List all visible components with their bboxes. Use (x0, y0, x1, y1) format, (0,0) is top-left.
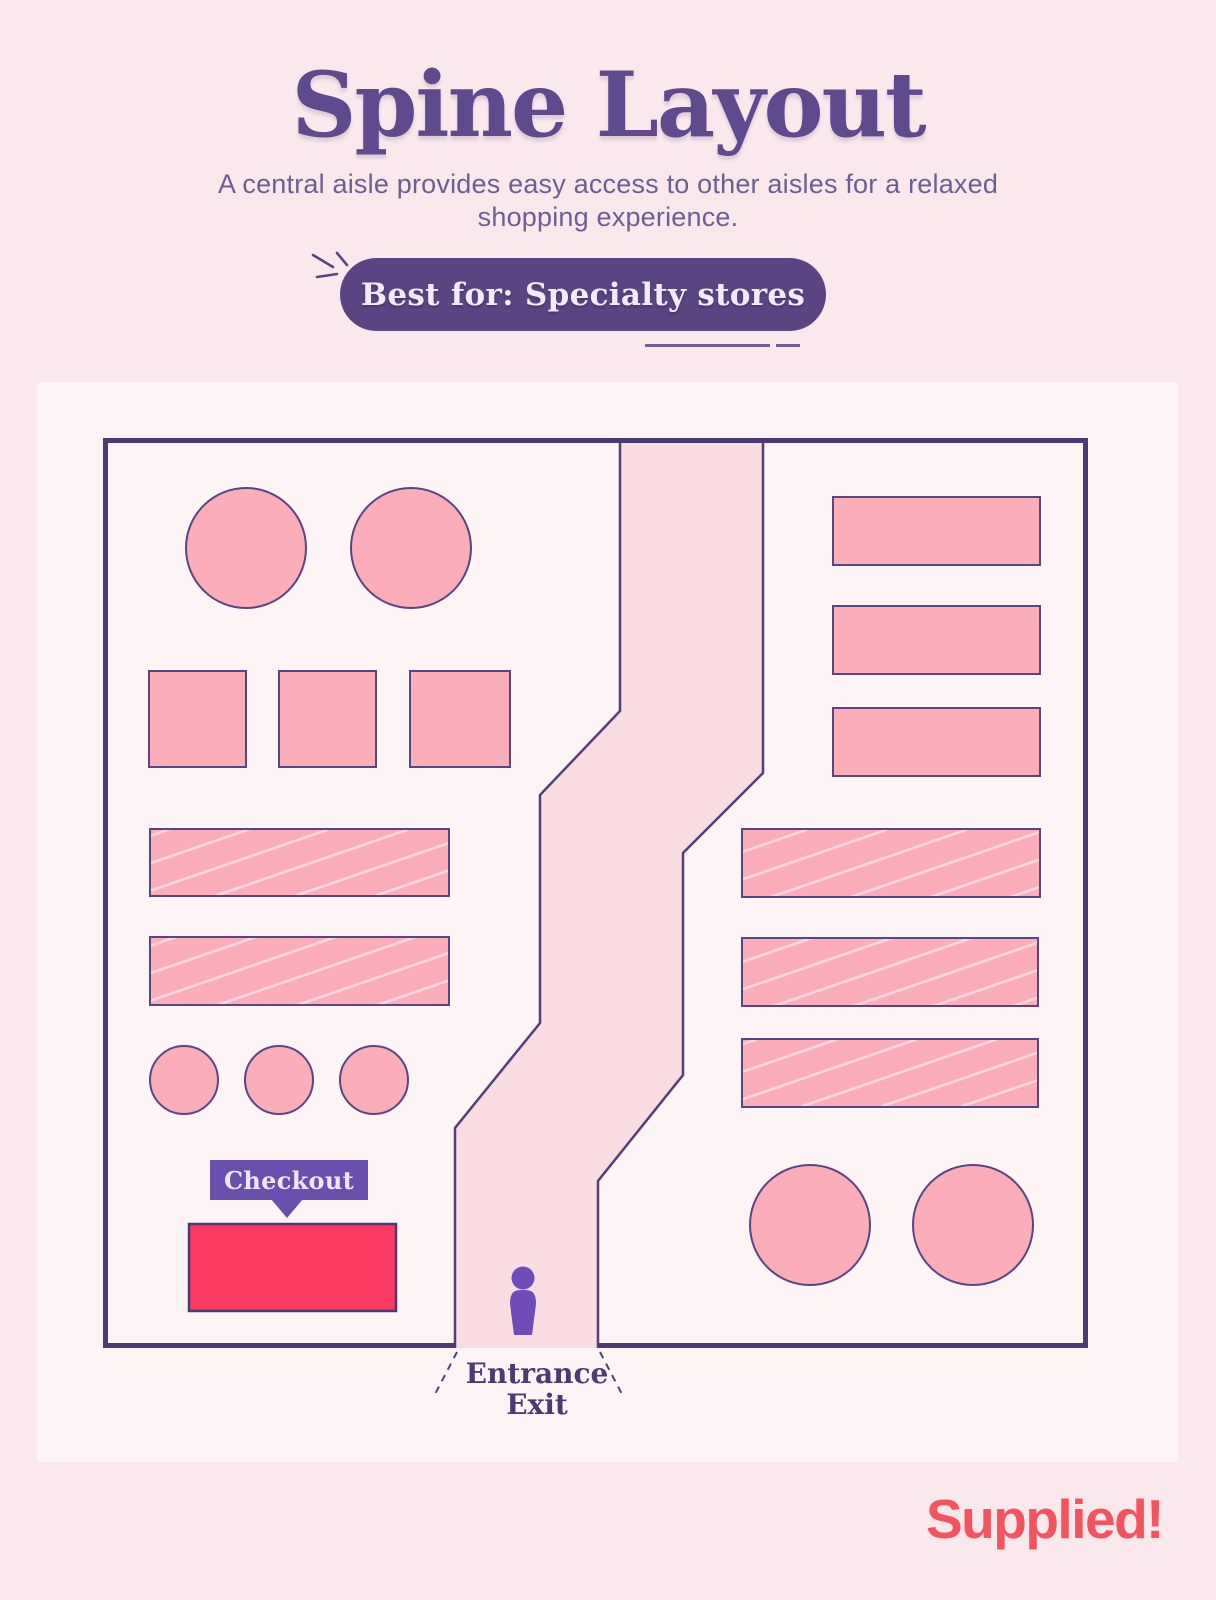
round-display-table (351, 488, 471, 608)
checkout-counter (189, 1224, 396, 1311)
shelf-row (833, 606, 1040, 674)
small-round-display (245, 1046, 313, 1114)
best-for-badge: Best for: Specialty stores (340, 258, 826, 331)
hatched-shelf-row (150, 937, 449, 1005)
badge-underline-dash (776, 344, 800, 347)
hatched-shelf-row (742, 938, 1038, 1006)
person-icon (510, 1267, 536, 1336)
small-round-display (340, 1046, 408, 1114)
spine-aisle (455, 438, 763, 1348)
infographic-page: Spine Layout A central aisle provides ea… (0, 0, 1216, 1600)
subtitle-line-2: shopping experience. (478, 202, 739, 232)
hatched-shelf-row (150, 829, 449, 896)
hatched-shelf-row (742, 829, 1040, 897)
entrance-exit-label: Entrance Exit (437, 1358, 637, 1420)
round-display-table (750, 1165, 870, 1285)
subtitle-line-1: A central aisle provides easy access to … (218, 169, 998, 199)
square-display-table (279, 671, 376, 767)
exit-line: Exit (506, 1388, 568, 1421)
page-subtitle: A central aisle provides easy access to … (208, 168, 1008, 234)
checkout-label-pointer (271, 1199, 303, 1218)
square-display-table (410, 671, 510, 767)
checkout-label: Checkout (210, 1160, 368, 1200)
round-display-table (913, 1165, 1033, 1285)
round-display-table (186, 488, 306, 608)
floor-plan-diagram (103, 438, 1088, 1423)
page-title: Spine Layout (0, 52, 1216, 158)
shelf-row (833, 497, 1040, 565)
hatched-shelf-row (742, 1039, 1038, 1107)
entrance-line: Entrance (466, 1357, 609, 1390)
shelf-row (833, 708, 1040, 776)
badge-underline (645, 344, 770, 347)
square-display-table (149, 671, 246, 767)
supplied-logo: Supplied! (926, 1487, 1163, 1551)
small-round-display (150, 1046, 218, 1114)
